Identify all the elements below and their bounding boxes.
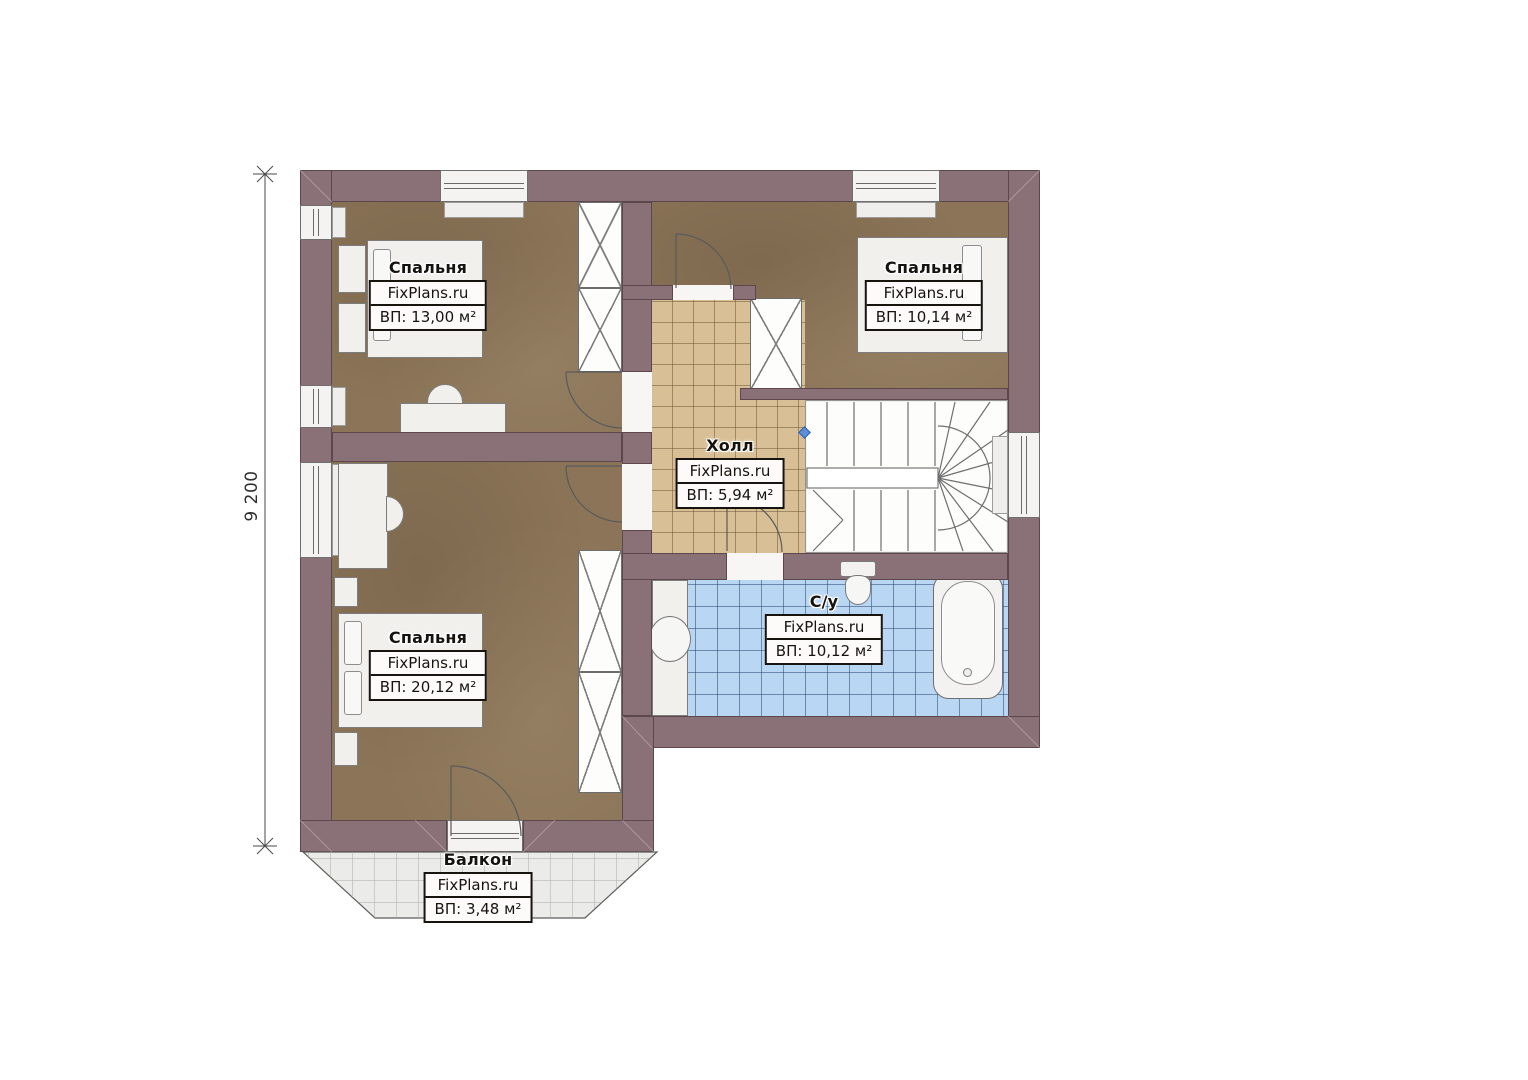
staircase	[805, 400, 1008, 553]
window-sill	[856, 202, 936, 218]
room-name: Холл	[706, 436, 754, 455]
door-opening	[622, 372, 652, 432]
fixplans-watermark: FixPlans.ru	[767, 616, 881, 640]
floor-plan-canvas: Спальня FixPlans.ru ВП: 13,00 м² Спальня…	[0, 0, 1528, 1080]
wall-below-bedroom2	[740, 388, 1008, 400]
wall-hall-left-mid	[622, 432, 652, 464]
fixplans-watermark: FixPlans.ru	[867, 282, 981, 306]
room-area: ВП: 10,14 м²	[867, 306, 981, 328]
pillow	[344, 621, 362, 665]
window	[440, 170, 528, 202]
room-area: ВП: 13,00 м²	[371, 306, 485, 328]
room-area: ВП: 5,94 м²	[678, 484, 783, 506]
window	[852, 170, 940, 202]
wall-vestibule-right	[733, 285, 756, 300]
fixplans-watermark: FixPlans.ru	[426, 874, 531, 898]
window	[1008, 432, 1040, 518]
room-name: Спальня	[389, 628, 467, 647]
window	[300, 205, 332, 240]
nightstand	[338, 303, 366, 353]
window-sill	[332, 387, 346, 426]
closet-cell	[750, 298, 802, 390]
window	[300, 462, 332, 558]
room-label-balcony: Балкон FixPlans.ru ВП: 3,48 м²	[424, 850, 533, 923]
room-info-box: FixPlans.ru ВП: 5,94 м²	[676, 458, 785, 509]
room-name: Спальня	[389, 258, 467, 277]
wall-above-bathroom-left	[622, 553, 727, 580]
room-info-box: FixPlans.ru ВП: 20,12 м²	[369, 650, 487, 701]
fixplans-watermark: FixPlans.ru	[678, 460, 783, 484]
wardrobe-cell	[578, 672, 622, 793]
room-label-bedroom-bottom-left: Спальня FixPlans.ru ВП: 20,12 м²	[369, 628, 487, 701]
window	[300, 385, 332, 428]
wardrobe-cell	[578, 202, 622, 288]
room-area: ВП: 20,12 м²	[371, 676, 485, 698]
wall-between-bedrooms	[332, 432, 622, 462]
room-name: С/у	[810, 592, 839, 611]
window-sill	[444, 202, 524, 218]
door-opening	[673, 285, 733, 300]
room-label-bathroom: С/у FixPlans.ru ВП: 10,12 м²	[765, 592, 883, 665]
nightstand	[338, 245, 366, 293]
wall-bay-left	[300, 820, 447, 852]
nightstand	[334, 732, 358, 766]
fixplans-watermark: FixPlans.ru	[371, 282, 485, 306]
room-info-box: FixPlans.ru ВП: 3,48 м²	[424, 872, 533, 923]
wardrobe-cell	[578, 288, 622, 372]
window-sill	[992, 436, 1008, 514]
dimension-label: 9 200	[242, 456, 262, 536]
room-name: Балкон	[444, 850, 513, 869]
room-label-hall: Холл FixPlans.ru ВП: 5,94 м²	[676, 436, 785, 509]
room-info-box: FixPlans.ru ВП: 10,14 м²	[865, 280, 983, 331]
balcony-door	[447, 820, 523, 852]
wall-exterior-bottom-right	[652, 716, 1040, 748]
fixplans-watermark: FixPlans.ru	[371, 652, 485, 676]
room-area: ВП: 3,48 м²	[426, 898, 531, 920]
room-info-box: FixPlans.ru ВП: 10,12 м²	[765, 614, 883, 665]
window-sill	[332, 207, 346, 238]
room-label-bedroom-top-left: Спальня FixPlans.ru ВП: 13,00 м²	[369, 258, 487, 331]
bathtub-drain	[963, 668, 972, 677]
room-name: Спальня	[885, 258, 963, 277]
door-opening	[622, 464, 652, 530]
sink	[649, 616, 691, 662]
desk	[338, 463, 388, 569]
room-label-bedroom-top-right: Спальня FixPlans.ru ВП: 10,14 м²	[865, 258, 983, 331]
room-area: ВП: 10,12 м²	[767, 640, 881, 662]
room-info-box: FixPlans.ru ВП: 13,00 м²	[369, 280, 487, 331]
nightstand	[334, 577, 358, 607]
wall-bay-right	[523, 820, 654, 852]
pillow	[344, 671, 362, 715]
door-opening	[727, 553, 783, 580]
wall-above-bathroom-right	[783, 553, 1008, 580]
wardrobe-cell	[578, 550, 622, 672]
wall-vestibule-left	[622, 285, 673, 300]
